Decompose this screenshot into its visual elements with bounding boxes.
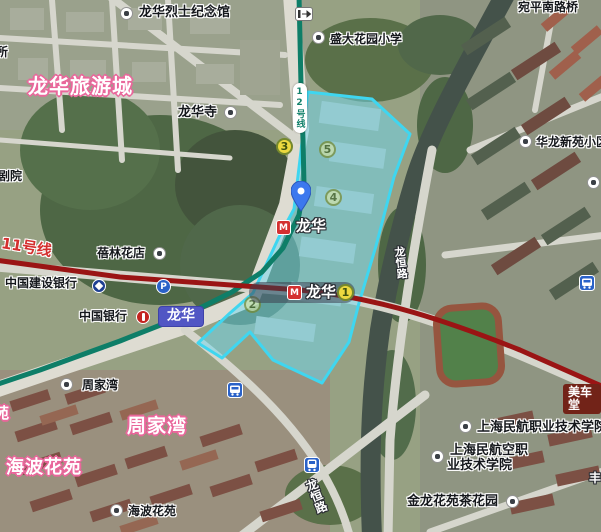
road-entrance-icon	[295, 7, 313, 21]
district-label-haibo-garden: 海波花苑	[6, 459, 82, 477]
college-icon[interactable]	[459, 420, 472, 433]
line12-label-banner: 12号线	[293, 83, 307, 133]
school-icon[interactable]	[312, 31, 325, 44]
location-pin[interactable]	[291, 181, 311, 212]
district-label-zhoujiawan: 周家湾	[127, 417, 187, 436]
poi-label-zhoujiawan-stop[interactable]: 周家湾	[82, 379, 118, 391]
metro-entrance-icon[interactable]	[304, 457, 320, 473]
poi-label-longhua-temple[interactable]: 龙华寺	[178, 106, 217, 119]
poi-label-aviation-college2-line2[interactable]: 业技术学院	[447, 459, 512, 472]
numbered-marker-3[interactable]: 3	[276, 138, 293, 155]
parking-icon[interactable]: P	[156, 279, 171, 294]
partial-label-theater: 剧院	[0, 170, 22, 182]
poi-label-beilin-florist[interactable]: 蓓林花店	[97, 247, 145, 259]
poi-label-ccb[interactable]: 中国建设银行	[5, 277, 77, 289]
poi-label-aviation-college2-line1[interactable]: 上海民航空职	[450, 444, 528, 457]
numbered-marker-1[interactable]: 1	[337, 284, 354, 301]
bus-stop-icon[interactable]	[60, 378, 73, 391]
railway-station-badge[interactable]: 龙华	[158, 306, 204, 327]
poi-label-boc[interactable]: 中国银行	[79, 310, 127, 322]
college-icon-2[interactable]	[431, 450, 444, 463]
poi-label-aviation-college[interactable]: 上海民航职业技术学院	[477, 421, 601, 434]
temple-icon[interactable]	[224, 106, 237, 119]
residential-icon-2[interactable]	[110, 504, 123, 517]
numbered-marker-4[interactable]: 4	[325, 189, 342, 206]
metro-logo-icon-2[interactable]: M	[287, 285, 302, 300]
road-label-wanping-bridge: 宛平南路桥	[518, 1, 578, 13]
station-label-longhua-lower[interactable]: 龙华	[306, 285, 336, 300]
metro-logo-icon[interactable]: M	[276, 220, 291, 235]
residential-icon[interactable]	[519, 135, 532, 148]
poi-label-martyrs-memorial[interactable]: 龙华烈士纪念馆	[139, 6, 230, 19]
station-label-longhua-upper[interactable]: 龙华	[296, 219, 326, 234]
partial-label-feng: 丰	[589, 472, 601, 484]
poi-label-jinlong-garden[interactable]: 金龙花苑茶花园	[407, 495, 498, 508]
line12-label: 12号线	[294, 87, 307, 129]
bus-station-icon-2[interactable]	[227, 382, 243, 398]
partial-poi-icon[interactable]	[587, 176, 600, 189]
district-label-tourist-city: 龙华旅游城	[28, 76, 133, 96]
poi-badge-meichetang[interactable]: 美车堂	[563, 384, 601, 414]
numbered-marker-5[interactable]: 5	[319, 141, 336, 158]
memorial-icon[interactable]	[120, 7, 133, 20]
flower-shop-icon[interactable]	[153, 247, 166, 260]
poi-label-shengda-primary[interactable]: 盛大花园小学	[330, 33, 402, 45]
poi-label-hualong-estate[interactable]: 华龙新苑小区	[536, 136, 601, 148]
ccb-bank-icon[interactable]	[92, 279, 106, 293]
partial-label-suo: 所	[0, 46, 8, 58]
satellite-map-view[interactable]: 龙华烈士纪念馆 所 剧院 龙华旅游城 龙华寺 盛大花园小学 宛平南路桥 12号线…	[0, 0, 601, 532]
partial-label-yuan: 苑	[0, 406, 10, 421]
bus-station-icon[interactable]	[579, 275, 595, 291]
road-label-longheng-upper: 龙恒路	[393, 246, 407, 280]
poi-label-haibo-stop[interactable]: 海波花苑	[128, 505, 176, 517]
boc-bank-icon[interactable]	[136, 310, 150, 324]
garden-icon[interactable]	[506, 495, 519, 508]
